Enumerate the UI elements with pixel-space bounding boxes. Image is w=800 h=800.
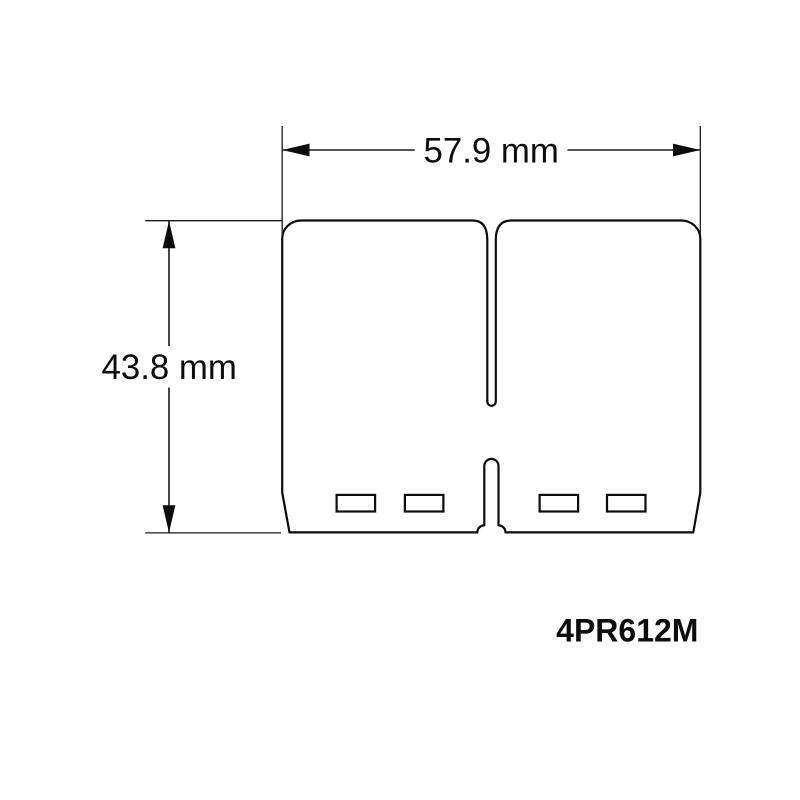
- svg-text:57.9 mm: 57.9 mm: [424, 132, 559, 171]
- svg-text:4PR612M: 4PR612M: [556, 613, 698, 649]
- svg-text:43.8 mm: 43.8 mm: [102, 348, 237, 387]
